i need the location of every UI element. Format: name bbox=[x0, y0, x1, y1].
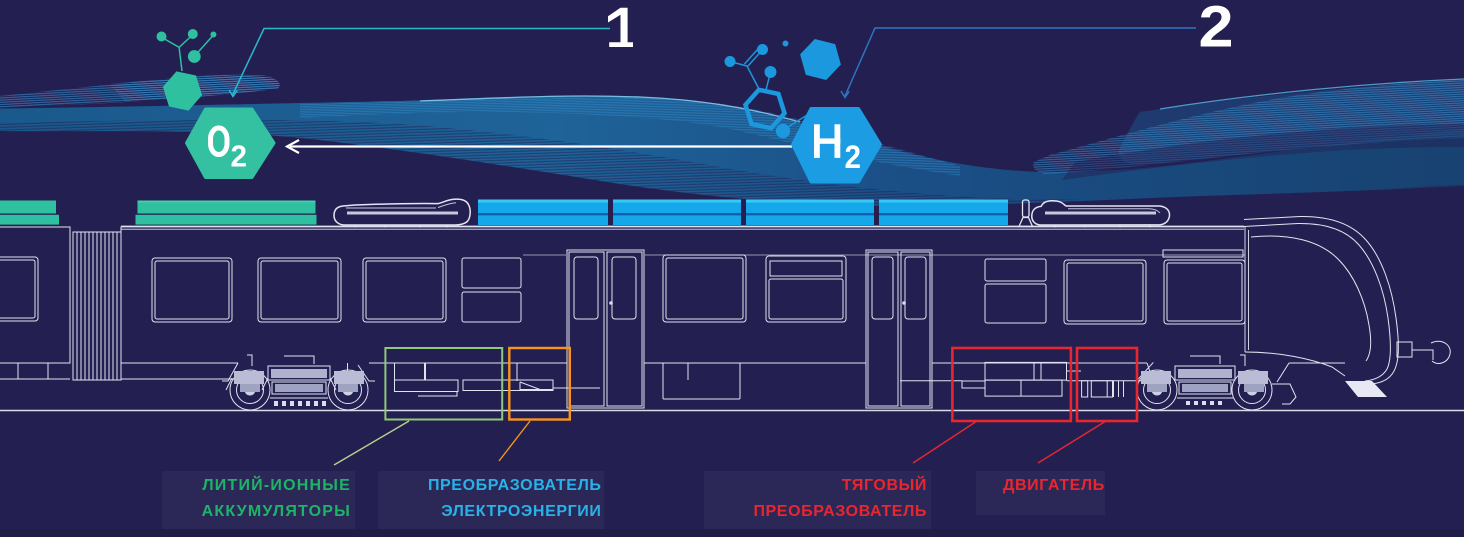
svg-text:ДВИГАТЕЛЬ: ДВИГАТЕЛЬ bbox=[1003, 477, 1105, 494]
svg-text:ТЯГОВЫЙ: ТЯГОВЫЙ bbox=[842, 475, 927, 494]
svg-text:АККУМУЛЯТОРЫ: АККУМУЛЯТОРЫ bbox=[202, 503, 351, 520]
svg-text:2: 2 bbox=[845, 139, 862, 175]
svg-text:2: 2 bbox=[231, 139, 248, 174]
svg-text:ПРЕОБРАЗОВАТЕЛЬ: ПРЕОБРАЗОВАТЕЛЬ bbox=[753, 503, 927, 520]
svg-text:ЛИТИЙ-ИОННЫЕ: ЛИТИЙ-ИОННЫЕ bbox=[202, 475, 351, 494]
svg-text:ЭЛЕКТРОЭНЕРГИИ: ЭЛЕКТРОЭНЕРГИИ bbox=[441, 503, 601, 520]
svg-text:ПРЕОБРАЗОВАТЕЛЬ: ПРЕОБРАЗОВАТЕЛЬ bbox=[428, 477, 602, 494]
svg-text:2: 2 bbox=[1199, 0, 1234, 60]
